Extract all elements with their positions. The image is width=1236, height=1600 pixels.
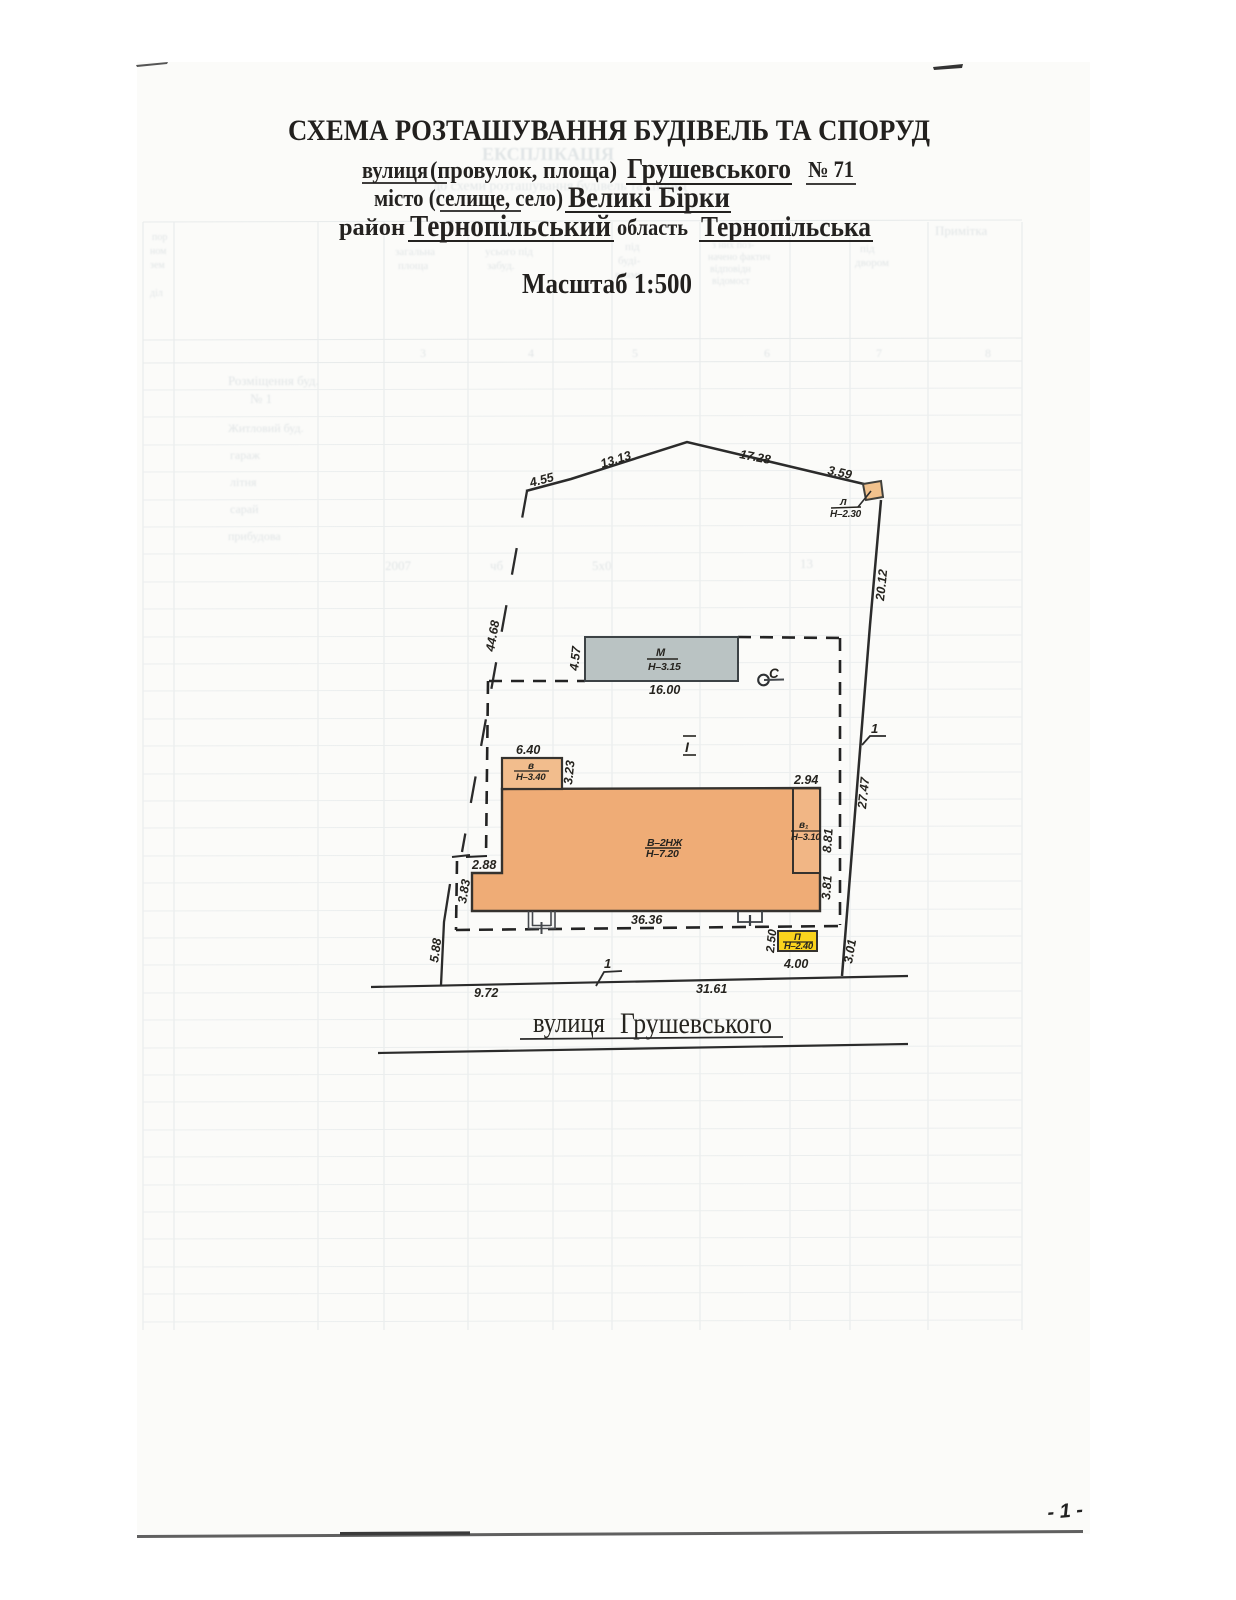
svg-text:36.36: 36.36: [631, 913, 663, 927]
svg-text:3.23: 3.23: [561, 760, 577, 786]
svg-text:М: М: [656, 647, 666, 659]
svg-text:13: 13: [800, 556, 813, 571]
svg-text:5х0: 5х0: [592, 558, 612, 573]
svg-text:начено фактич: начено фактич: [708, 252, 770, 263]
svg-text:- 1 -: - 1 -: [1047, 1499, 1085, 1524]
svg-text:прибудова: прибудова: [228, 529, 281, 543]
svg-text:область: область: [617, 215, 688, 240]
svg-text:31.61: 31.61: [696, 982, 727, 996]
svg-text:Н–3.15: Н–3.15: [648, 661, 681, 673]
svg-text:л: л: [839, 496, 847, 508]
svg-text:Н–7.20: Н–7.20: [646, 848, 679, 860]
svg-text:загальна: загальна: [395, 246, 435, 258]
svg-text:СХЕМА РОЗТАШУВАННЯ БУДІВЕЛЬ ТА: СХЕМА РОЗТАШУВАННЯ БУДІВЕЛЬ ТА СПОРУД: [288, 114, 930, 147]
svg-text:Тернопільська: Тернопільська: [701, 211, 871, 243]
svg-text:ном: ном: [150, 246, 167, 257]
svg-text:8.81: 8.81: [820, 828, 836, 853]
svg-text:вулиця: вулиця: [362, 158, 428, 184]
svg-text:2.94: 2.94: [793, 773, 818, 787]
svg-text:в₁: в₁: [799, 820, 809, 831]
svg-text:1: 1: [604, 956, 611, 971]
svg-text:16.00: 16.00: [649, 683, 680, 697]
svg-text:Грушевського: Грушевського: [620, 1007, 772, 1040]
svg-text:чб: чб: [490, 558, 504, 573]
svg-text:1: 1: [871, 721, 878, 736]
svg-text:під: під: [860, 243, 875, 255]
svg-text:Н–3.10: Н–3.10: [791, 832, 821, 843]
svg-text:2.88: 2.88: [471, 858, 496, 872]
svg-text:6: 6: [764, 346, 770, 360]
svg-text:Н–2.30: Н–2.30: [830, 509, 862, 520]
svg-text:Розміщення буд.: Розміщення буд.: [228, 373, 319, 388]
svg-text:гараж: гараж: [230, 448, 261, 462]
svg-text:8: 8: [985, 346, 991, 360]
svg-text:площа: площа: [398, 260, 428, 272]
svg-text:4: 4: [528, 346, 534, 360]
svg-text:двором: двором: [855, 257, 889, 269]
svg-text:пор: пор: [152, 232, 167, 243]
svg-text:С: С: [769, 666, 779, 681]
svg-text:діл: діл: [150, 288, 163, 299]
svg-text:забуд.: забуд.: [487, 260, 515, 272]
svg-text:сарай: сарай: [230, 502, 259, 516]
svg-text:усього під: усього під: [485, 246, 533, 258]
svg-text:вулиця: вулиця: [533, 1008, 605, 1039]
svg-text:3.81: 3.81: [819, 875, 835, 900]
svg-text:№ 1: № 1: [250, 391, 272, 406]
svg-text:7: 7: [876, 346, 882, 360]
svg-text:4.00: 4.00: [783, 957, 808, 971]
svg-text:6.40: 6.40: [516, 743, 540, 757]
svg-text:Примітка: Примітка: [935, 223, 987, 238]
svg-text:район: район: [339, 215, 405, 241]
svg-text:Житловий буд.: Житловий буд.: [228, 421, 304, 435]
svg-text:2007: 2007: [385, 558, 412, 573]
svg-text:№ 71: № 71: [808, 157, 854, 182]
svg-text:3: 3: [420, 346, 426, 360]
svg-text:відповідн: відповідн: [710, 264, 752, 275]
svg-text:2.50: 2.50: [763, 928, 780, 954]
svg-text:буді-: буді-: [618, 255, 641, 267]
svg-text:Н–2.40: Н–2.40: [784, 941, 814, 952]
svg-text:під: під: [625, 241, 640, 253]
svg-text:відомост: відомост: [712, 276, 750, 287]
svg-text:Н–3.40: Н–3.40: [516, 772, 546, 783]
svg-text:4.57: 4.57: [567, 645, 584, 673]
svg-text:зем: зем: [150, 260, 165, 271]
svg-text:літня: літня: [230, 475, 257, 489]
svg-text:5: 5: [632, 346, 638, 360]
svg-text:Тернопільський: Тернопільський: [410, 208, 611, 243]
svg-text:Масштаб 1:500: Масштаб 1:500: [522, 269, 692, 300]
svg-text:9.72: 9.72: [474, 986, 498, 1000]
